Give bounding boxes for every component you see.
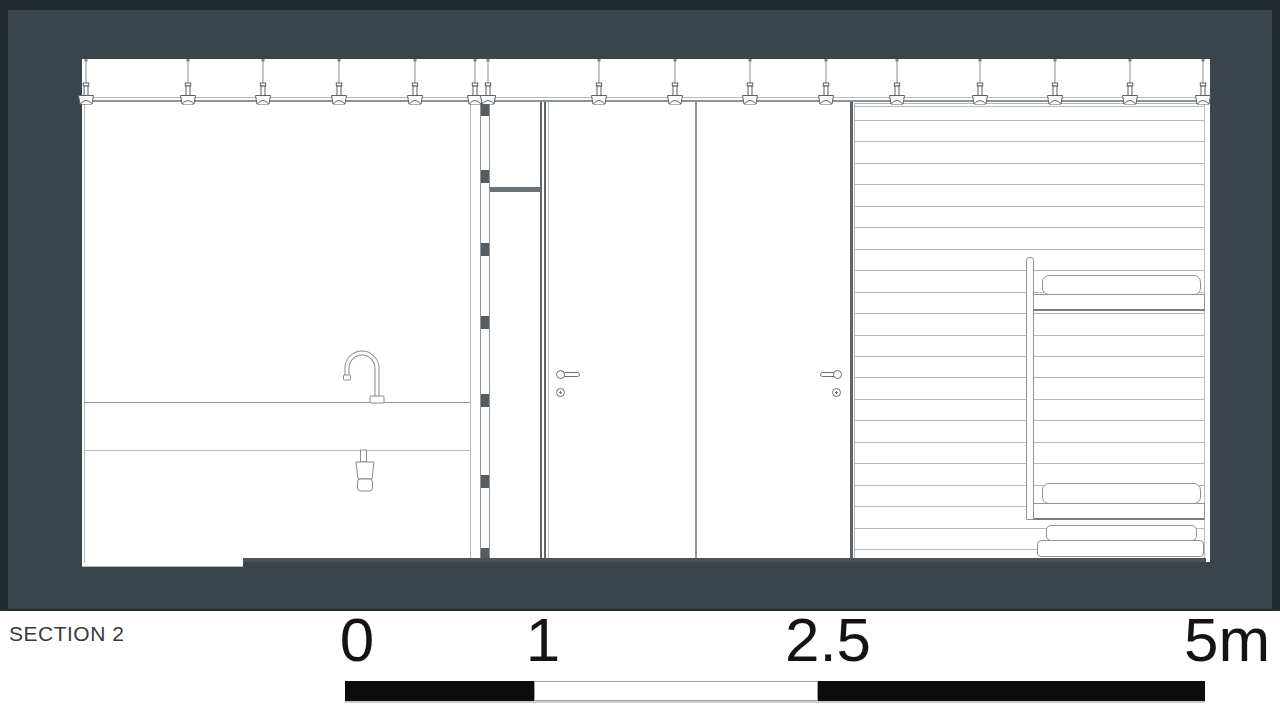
door-frame-line-b	[544, 102, 546, 558]
wall-slat-line	[855, 206, 1204, 207]
door-frame-line-a	[540, 102, 542, 558]
slat-panel-right-edge	[1204, 103, 1205, 558]
pendant-light-icon	[1192, 59, 1214, 105]
pendant-light-icon	[739, 59, 761, 105]
door-left-edge	[548, 102, 549, 558]
wall-slat-line	[855, 141, 1204, 142]
wall-slat-line	[855, 120, 1204, 121]
closet-shelf	[490, 187, 542, 192]
door-right-edge	[850, 102, 853, 558]
paper-bottom-step	[82, 562, 243, 567]
page: SECTION 2 0 1 2.5 5m	[0, 0, 1280, 708]
pendant-light-icon	[177, 59, 199, 105]
bunk-top-mattress	[1042, 275, 1201, 295]
pendant-light-icon	[1119, 59, 1141, 105]
pendant-light-icon	[477, 59, 499, 105]
counter-bottom-line	[84, 450, 470, 451]
wall-stud-block	[481, 475, 489, 488]
scale-label-0: 0	[340, 609, 374, 671]
wall-stud-block	[481, 316, 489, 329]
wall-face-line	[470, 102, 471, 562]
stud-wall-line-right	[489, 102, 490, 560]
door-lock-left	[556, 388, 565, 397]
wall-slat-line	[855, 249, 1204, 250]
pendant-light-icon	[404, 59, 426, 105]
footer: SECTION 2 0 1 2.5 5m	[0, 611, 1280, 708]
bunk-bottom-mattress	[1042, 483, 1201, 504]
scale-label-2-5: 2.5	[785, 609, 871, 671]
drain-trap-icon	[352, 449, 378, 493]
door-lock-right	[832, 388, 841, 397]
slat-panel-top-line-b	[854, 106, 1205, 107]
wall-stud-block	[481, 170, 489, 183]
door-divider-line	[695, 102, 697, 558]
wall-slat-line	[855, 227, 1204, 228]
scale-label-5m: 5m	[1184, 609, 1270, 671]
pendant-light-icon	[1044, 59, 1066, 105]
section-title: SECTION 2	[9, 622, 124, 646]
floor-bed-lower	[1037, 540, 1204, 557]
scale-bar-shadow	[345, 701, 1205, 703]
scale-label-1: 1	[526, 609, 560, 671]
left-wall-line	[84, 102, 85, 563]
wall-stud-block	[481, 243, 489, 256]
counter-top-line	[84, 402, 470, 403]
bunk-top-platform	[1033, 294, 1205, 311]
pendant-light-icon	[252, 59, 274, 105]
wall-slat-line	[855, 184, 1204, 185]
pendant-light-icon	[815, 59, 837, 105]
floor-bed-upper	[1046, 525, 1197, 541]
door-handle-left-rose	[556, 370, 565, 379]
pendant-light-icon	[664, 59, 686, 105]
pendant-light-icon	[328, 59, 350, 105]
scale-bar-segment-1	[345, 681, 534, 701]
pendant-light-icon	[969, 59, 991, 105]
slat-panel-left-edge	[854, 103, 855, 558]
scale-bar-segment-2	[534, 681, 818, 701]
pendant-light-icon	[75, 59, 97, 105]
wall-stud-block	[481, 394, 489, 407]
scale-bar-segment-3	[818, 681, 1205, 701]
bunk-bottom-platform	[1033, 503, 1205, 520]
floor-line	[243, 558, 1206, 562]
wall-slat-line	[855, 163, 1204, 164]
pendant-light-icon	[886, 59, 908, 105]
faucet-icon	[330, 342, 390, 408]
pendant-light-icon	[588, 59, 610, 105]
door-handle-right-rose	[833, 370, 842, 379]
